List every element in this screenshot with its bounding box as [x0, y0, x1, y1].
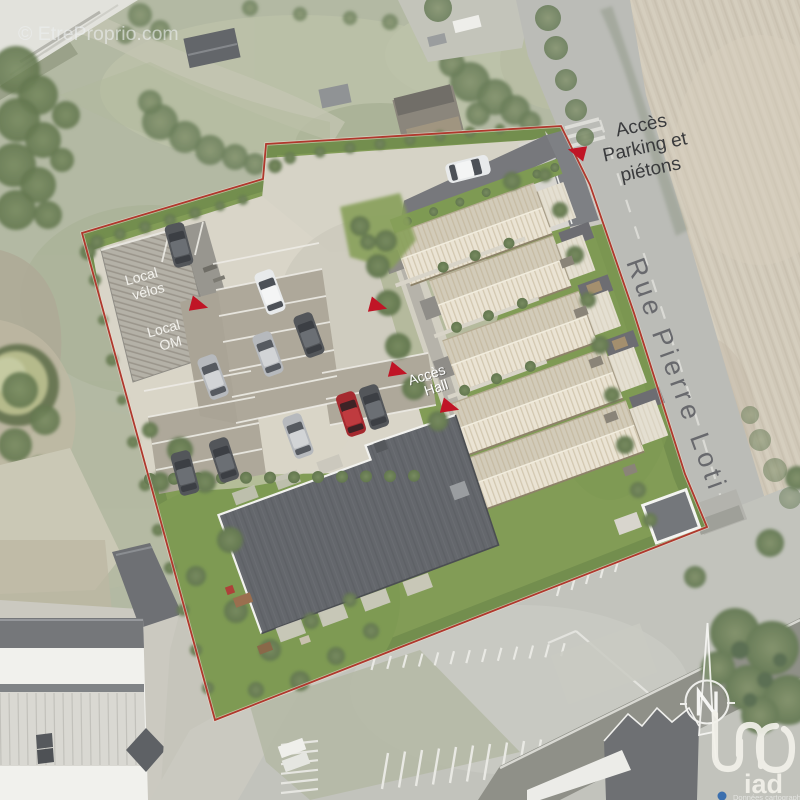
svg-text:Données cartographiques: Données cartographiques — [733, 793, 800, 800]
svg-text:© EtreProprio.com: © EtreProprio.com — [18, 23, 179, 45]
